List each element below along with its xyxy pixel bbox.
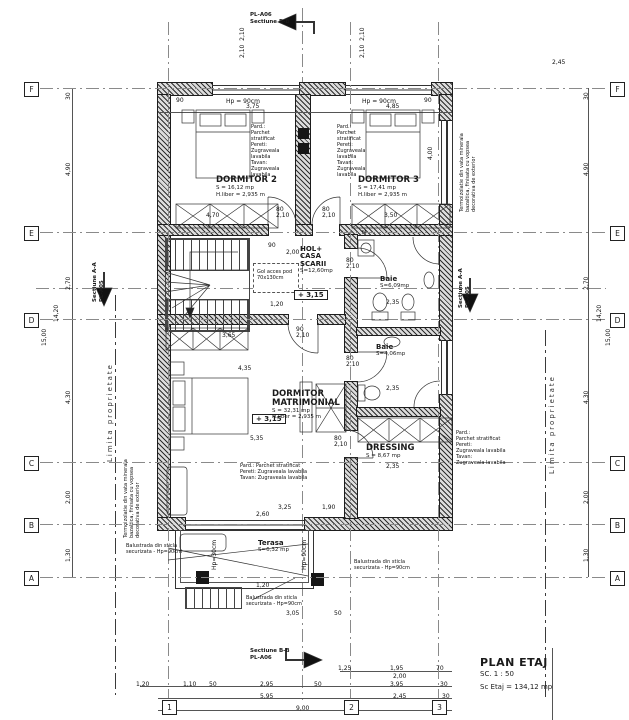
axis-label-C: C — [24, 456, 39, 471]
room-name: Baie — [376, 344, 405, 351]
bed-matrimonial — [170, 378, 248, 434]
axis-label-C: C — [610, 456, 625, 471]
room-label-baie: BaieS=6,09mp — [380, 276, 409, 290]
room-info: S=6,09mp — [380, 283, 409, 290]
room-info: H.liber = 2,935 m — [272, 414, 340, 421]
dimension-label: 80 2,10 — [346, 258, 359, 271]
finish-note: Pard.: Parchet stratificat Pereti: Zugra… — [251, 124, 279, 178]
pillow — [225, 114, 246, 126]
nightstand — [182, 110, 194, 123]
dimension-label: 3,25 — [278, 505, 291, 511]
section-marker: Sectiune A-A PL-A05 — [458, 268, 472, 308]
dimension-label: 90 2,10 — [296, 327, 309, 340]
room-info: S = 17,41 mp — [358, 185, 419, 192]
axis-label-D: D — [24, 313, 39, 328]
sofa — [167, 467, 187, 515]
annotation: Balustrada din sticla securizata - Hp=90… — [126, 544, 182, 556]
dimension-label: 30 — [584, 92, 590, 100]
axis-label-A: A — [610, 571, 625, 586]
section-marker: Sectiune B-B PL-A06 — [250, 648, 290, 662]
plan-scale: SC. 1 : 50 — [480, 670, 552, 678]
dimension-label: 4,30 — [66, 391, 72, 404]
dimension-label: 90 — [176, 98, 184, 104]
axis-label-A: A — [24, 571, 39, 586]
toilet — [364, 386, 380, 400]
bed — [366, 110, 420, 178]
annotation: Gol acces pod 70x130cm — [257, 270, 292, 282]
dimension-label: 30 — [440, 682, 448, 688]
room-name: Terasa — [258, 540, 289, 547]
room-info: S=6,32 mp — [258, 547, 289, 554]
pillow — [370, 114, 391, 126]
room-info: H.liber = 2,935 m — [216, 192, 277, 199]
lounger — [180, 534, 226, 551]
dimension-label: 5,95 — [260, 694, 273, 700]
room-label-dormitor-2: DORMITOR 2S = 16,12 mpH.liber = 2,935 m — [216, 176, 277, 198]
dimension-label: Hp=90cm — [302, 540, 308, 570]
dimension-label: 1,90 — [322, 505, 335, 511]
axis-label-2: 2 — [344, 700, 359, 715]
axis-label-F: F — [24, 82, 39, 97]
dimension-label: 1,20 — [270, 302, 283, 308]
plan-total-area: Sc Etaj = 134,12 mp — [480, 683, 552, 691]
axis-label-1: 1 — [162, 700, 177, 715]
dimension-label: 1,30 — [66, 549, 72, 562]
dimension-label: 4,35 — [238, 366, 251, 372]
dimension-label: Hp=30cm — [212, 540, 218, 570]
dimension-label: 1,20 — [256, 583, 269, 589]
title-block: PLAN ETAJ SC. 1 : 50 Sc Etaj = 134,12 mp — [480, 656, 552, 691]
dimension-label: 3,95 — [390, 682, 403, 688]
dimension-label: Hp = 90cm — [362, 99, 396, 105]
annotation: Limita proprietate — [106, 363, 114, 462]
dimension-label: 90 — [424, 98, 432, 104]
dimension-label: 4,00 — [428, 147, 434, 160]
room-label-dormitor-3: DORMITOR 3S = 17,41 mpH.liber = 2,935 m — [358, 176, 419, 198]
annotation: Balustrada din sticla securizata - Hp=90… — [354, 560, 410, 572]
room-info: S = 32,31 mp — [272, 408, 340, 415]
dimension-label: 2,00 — [584, 491, 590, 504]
level-marker: + 3,15 — [294, 290, 328, 300]
room-label-baie: BaieS=4,06mp — [376, 344, 405, 358]
room-info: S = 8,67 mp — [366, 453, 415, 460]
dimension-label: 1,25 — [338, 666, 351, 672]
finish-note: Pard.: Parchet stratificat Pereti: Zugra… — [337, 124, 365, 178]
room-name: Baie — [380, 276, 409, 283]
annotation: M — [362, 231, 366, 237]
room-name: DORMITOR MATRIMONIAL — [272, 390, 340, 408]
dimension-label: 14,20 — [54, 305, 60, 322]
dimension-label: 2,00 — [66, 491, 72, 504]
room-label-dressing: DRESSINGS = 8,67 mp — [366, 444, 415, 460]
nightstand — [170, 437, 184, 450]
dimension-label: 4,90 — [584, 163, 590, 176]
section-marker: Sectiune A-A PL-A05 — [92, 262, 106, 302]
dimension-label: 2,45 — [393, 694, 406, 700]
axis-label-D: D — [610, 313, 625, 328]
nightstand — [252, 110, 264, 123]
room-label-dormitor-matrimonial: DORMITOR MATRIMONIALS = 32,31 mpH.liber … — [272, 390, 340, 421]
dimension-label: 5,35 — [250, 436, 263, 442]
dimension-label: 90 — [268, 243, 276, 249]
dimension-label: 14,20 — [597, 305, 603, 322]
axis-label-B: B — [610, 518, 625, 533]
dimension-label: 30 — [66, 92, 72, 100]
dimension-label: 2,35 — [386, 386, 399, 392]
toilet — [373, 293, 387, 311]
annotation: Limita proprietate — [548, 375, 556, 474]
dimension-label: 3,65 — [222, 333, 235, 339]
stair-arrowhead — [186, 308, 194, 318]
dimension-label: 1,20 — [136, 682, 149, 688]
pillow — [173, 381, 185, 405]
dimension-label: 50 — [334, 611, 342, 617]
fixtures-layer — [0, 0, 629, 720]
axis-label-3: 3 — [432, 700, 447, 715]
room-name: DORMITOR 3 — [358, 176, 419, 185]
bed — [196, 110, 250, 178]
dimension-label: 2,10 2,10 — [360, 27, 366, 58]
annotation: Termoizolatie din vata minerala bazaltic… — [460, 133, 477, 212]
dimension-label: 3,05 — [286, 611, 299, 617]
annotation: Balustrada din sticla securizata - Hp=90… — [246, 596, 302, 608]
dimension-label: 2,35 — [386, 300, 399, 306]
room-info: S=12,60mp — [300, 268, 333, 275]
dimension-label: Hp = 90cm — [226, 99, 260, 105]
dimension-label: 50 — [209, 682, 217, 688]
axis-label-B: B — [24, 518, 39, 533]
floor-plan-drawing: 3,754,859090Hp = 90cmHp = 90cm2,10 2,102… — [0, 0, 629, 720]
dimension-label: 2,95 — [260, 682, 273, 688]
dimension-label: 70 — [436, 666, 444, 672]
dimension-label: 3,50 — [384, 213, 397, 219]
stair-winders — [165, 270, 248, 315]
room-name: DORMITOR 2 — [216, 176, 277, 185]
dimension-label: 15,00 — [42, 329, 48, 346]
dimension-label: 2,00 — [393, 674, 406, 680]
nightstand — [422, 110, 434, 123]
dimension-label: 4,70 — [206, 213, 219, 219]
axis-label-F: F — [610, 82, 625, 97]
section-flag-bottom — [304, 652, 322, 668]
stair-direction-line — [190, 252, 238, 312]
dimension-label: 2,70 — [584, 277, 590, 290]
room-info: H.liber = 2,935 m — [358, 192, 419, 199]
dimension-label: 2,00 — [286, 250, 299, 256]
dimension-label: 2,45 — [552, 60, 565, 66]
finish-note: Pard.: Parchet stratificat Pereti: Zugra… — [240, 463, 307, 481]
dimension-label: 1,30 — [584, 549, 590, 562]
dimension-label: 2,70 — [66, 277, 72, 290]
room-name: DRESSING — [366, 444, 415, 453]
dimension-label: 4,90 — [66, 163, 72, 176]
dimension-label: 50 — [314, 682, 322, 688]
room-info: S=4,06mp — [376, 351, 405, 358]
bidet — [402, 294, 414, 310]
sink — [424, 272, 434, 288]
room-name: HOL+ CASA SCARII — [300, 246, 333, 268]
axis-label-E: E — [24, 226, 39, 241]
dimension-label: 80 2,10 — [322, 207, 335, 220]
dimension-label: 1,10 — [183, 682, 196, 688]
dimension-label: 2,60 — [256, 512, 269, 518]
axis-label-E: E — [610, 226, 625, 241]
door-arc — [357, 248, 387, 278]
nightstand — [352, 110, 364, 123]
dimension-label: 4,30 — [584, 391, 590, 404]
dimension-label: 1,95 — [390, 666, 403, 672]
pillow — [200, 114, 221, 126]
pillow — [395, 114, 416, 126]
dimension-label: 15,00 — [606, 329, 612, 346]
finish-note: Pard.: Parchet stratificat Pereti: Zugra… — [456, 430, 506, 466]
annotation: Termoizolatie din vata minerala bazaltic… — [124, 459, 141, 538]
section-marker: PL-A06 Sectiune B-B — [250, 12, 290, 26]
nightstand — [170, 362, 184, 375]
room-label-hol-casa-scarii: HOL+ CASA SCARIIS=12,60mp — [300, 246, 333, 275]
room-label-terasa: TerasaS=6,32 mp — [258, 540, 289, 554]
plan-title: PLAN ETAJ — [480, 656, 552, 669]
dimension-label: 2,10 2,10 — [240, 27, 246, 58]
pillow — [173, 407, 185, 431]
dimension-label: 80 2,10 — [276, 207, 289, 220]
dimension-label: 2,35 — [386, 464, 399, 470]
room-info: S = 16,12 mp — [216, 185, 277, 192]
shower — [414, 381, 440, 407]
shower — [413, 237, 440, 264]
dimension-label: 9,00 — [296, 706, 309, 712]
dimension-label: 80 2,10 — [334, 436, 347, 449]
dimension-label: 80 2,10 — [346, 356, 359, 369]
